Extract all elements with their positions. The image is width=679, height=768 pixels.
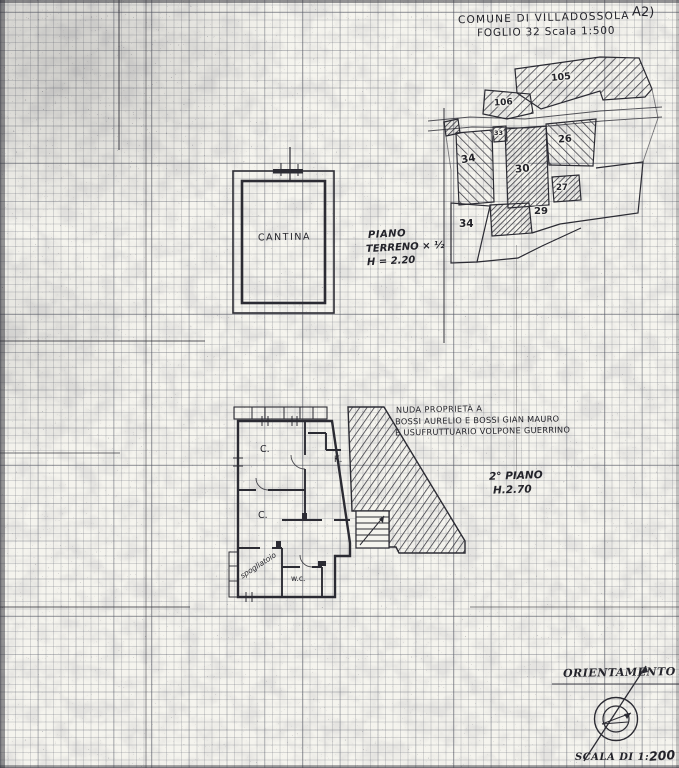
parcel-below30-shape xyxy=(490,203,532,236)
second-floor-caption-line1: 2° PIANO xyxy=(489,469,543,483)
scale-prefix: SCALA DI 1: xyxy=(575,752,649,763)
parcel-29-label: 29 xyxy=(534,206,548,217)
side-balcony xyxy=(229,552,238,597)
scanned-cadastral-sheet: A2) COMUNE DI VILLADOSSOLA FOGLIO 32 Sca… xyxy=(0,0,679,768)
compass-chord-arrowhead xyxy=(624,713,631,719)
parcel-34-label: 34 xyxy=(460,152,476,166)
drawing-layer xyxy=(0,0,679,768)
parcel-105-label: 105 xyxy=(550,71,571,84)
orientation-label: ORIENTAMENTO xyxy=(563,665,676,680)
room-k-label: K. xyxy=(334,455,342,465)
room-c1-label: C. xyxy=(260,444,270,455)
side-balcony-ticks xyxy=(229,566,238,581)
map-title-line2: FOGLIO 32 Scala 1:500 xyxy=(477,25,616,39)
parcel-30-label: 30 xyxy=(515,162,531,175)
balcony-ticks xyxy=(252,407,313,419)
parcel-34-shape xyxy=(456,130,494,205)
parcel-26-label: 26 xyxy=(558,134,573,146)
parcel-33-label: 33 xyxy=(494,129,503,137)
ownership-note-line1: NUDA PROPRIETÀ A xyxy=(396,403,483,415)
second-floor-caption-line2: H.2.70 xyxy=(493,483,532,496)
scale-label: SCALA DI 1:200 xyxy=(575,745,675,764)
ground-floor-caption-line1: PIANO xyxy=(368,228,407,241)
room-c2-label: C. xyxy=(258,510,268,521)
room-wc-label: w.c. xyxy=(291,574,305,583)
cantina-plan xyxy=(233,147,334,313)
parcel-105-shape xyxy=(515,57,652,109)
parcel-106-label: 106 xyxy=(494,97,513,108)
parcel-27-label: 27 xyxy=(556,183,568,193)
parcel-34b-shape xyxy=(451,203,490,263)
parcel-34b-label: 34 xyxy=(459,218,474,230)
cantina-room-label: CANTINA xyxy=(258,232,311,244)
sheet-corner-label: A2) xyxy=(632,4,655,20)
scale-value: 200 xyxy=(649,747,676,764)
parcel-boundary xyxy=(643,89,658,162)
parcel-boundary xyxy=(446,136,451,203)
